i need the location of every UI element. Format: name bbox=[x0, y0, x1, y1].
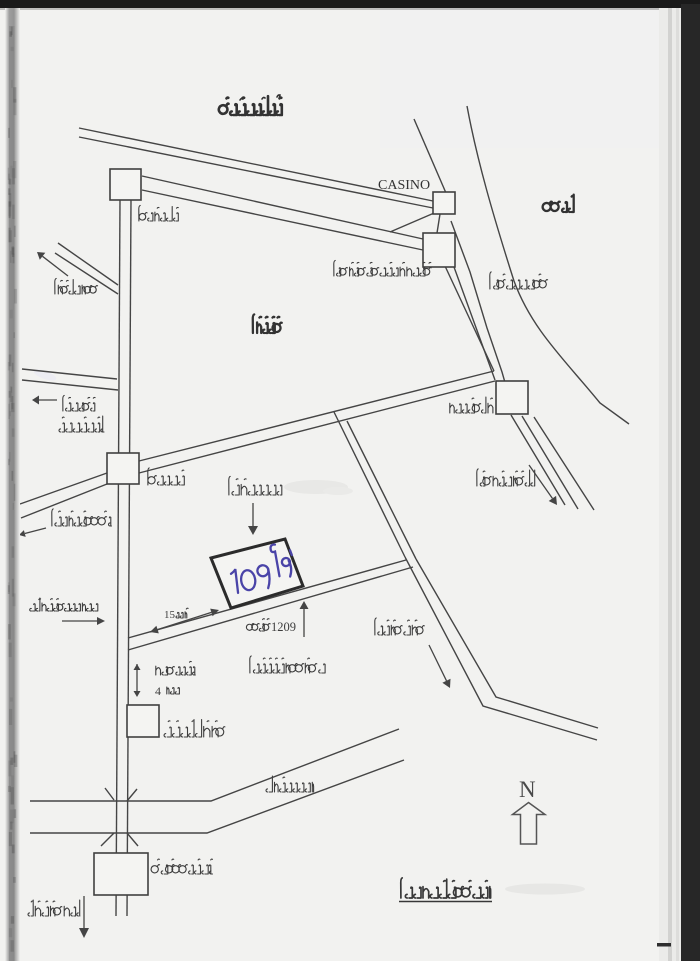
svg-text:4: 4 bbox=[155, 684, 161, 698]
svg-text:1209: 1209 bbox=[271, 620, 296, 634]
svg-text:N: N bbox=[519, 777, 536, 802]
svg-text:CASINO: CASINO bbox=[378, 178, 430, 193]
svg-text:15: 15 bbox=[164, 609, 176, 621]
